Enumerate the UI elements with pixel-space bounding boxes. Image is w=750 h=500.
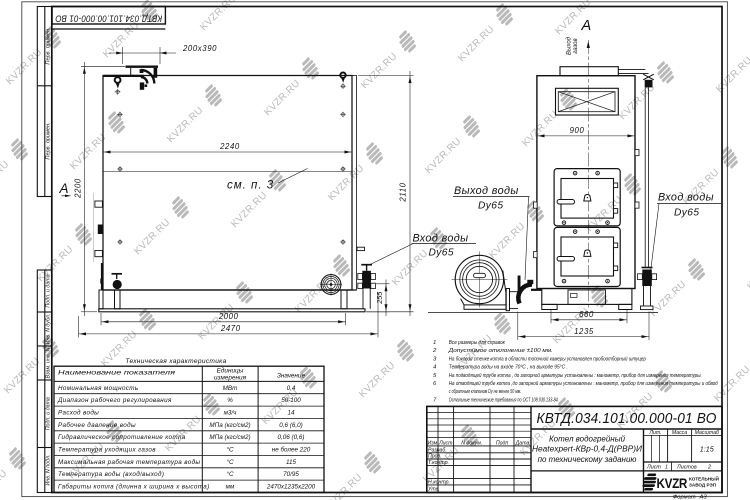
svg-text:КОТЕЛЬНЫЙ: КОТЕЛЬНЫЙ <box>689 475 719 482</box>
svg-text:2470: 2470 <box>220 324 241 333</box>
svg-text:см. п. 3: см. п. 3 <box>227 180 274 192</box>
svg-text:2240: 2240 <box>219 142 240 151</box>
svg-text:Все размеры для справок: Все размеры для справок <box>449 340 505 346</box>
svg-text:МВт: МВт <box>223 385 238 392</box>
svg-text:Лист: Лист <box>438 440 453 446</box>
svg-text:Пров.: Пров. <box>428 454 442 460</box>
svg-text:Выход воды: Выход воды <box>454 185 519 197</box>
svg-text:Номинальная мощность: Номинальная мощность <box>58 385 139 392</box>
svg-text:Остальные технические требован: Остальные технические требования по ОСТ … <box>449 397 559 403</box>
svg-text:ЗАВОД РЭП: ЗАВОД РЭП <box>689 483 716 488</box>
svg-text:Гидравлическое сопротивление к: Гидравлическое сопротивление котла <box>58 433 186 441</box>
svg-text:Температура воды (вход/выход): Температура воды (вход/выход) <box>58 470 164 478</box>
svg-text:Формат: Формат <box>673 495 696 500</box>
svg-text:КВТД.034.101.00.000-01 ВО: КВТД.034.101.00.000-01 ВО <box>537 410 717 427</box>
svg-text:Heatexpert-КВр-0,4-Д(РВР)И: Heatexpert-КВр-0,4-Д(РВР)И <box>532 445 642 454</box>
svg-text:Т.контр.: Т.контр. <box>428 460 449 466</box>
svg-text:Подп. и дата: Подп. и дата <box>45 274 51 307</box>
svg-text:1: 1 <box>433 340 436 346</box>
svg-text:KVZR: KVZR <box>657 476 688 491</box>
svg-text:А3: А3 <box>699 495 708 500</box>
svg-text:Наименование показателя: Наименование показателя <box>58 370 176 377</box>
svg-text:°С: °С <box>226 446 234 454</box>
svg-text:с обратным клапаном Dу не мен: с обратным клапаном Dу не менее 50 мм. <box>449 389 522 395</box>
svg-text:Перв. примен.: Перв. примен. <box>45 122 51 159</box>
svg-text:Утв.: Утв. <box>428 487 440 493</box>
svg-text:Рабочее давление воды: Рабочее давление воды <box>58 421 136 429</box>
svg-text:Dy65: Dy65 <box>478 201 503 212</box>
svg-text:2000: 2000 <box>218 312 239 321</box>
svg-text:Инв. N подл.: Инв. N подл. <box>45 455 51 486</box>
svg-text:2: 2 <box>432 348 437 354</box>
svg-text:50-100: 50-100 <box>281 397 301 404</box>
svg-text:Лит.: Лит. <box>648 430 661 436</box>
svg-text:A: A <box>59 181 69 196</box>
svg-text:измерения: измерения <box>214 375 247 382</box>
svg-text:900: 900 <box>570 126 585 135</box>
svg-text:Расход воды: Расход воды <box>58 409 99 417</box>
svg-text:м3/ч: м3/ч <box>224 410 238 417</box>
svg-text:70/95: 70/95 <box>283 471 299 478</box>
svg-text:МПа (кгс/см2): МПа (кгс/см2) <box>209 434 250 441</box>
svg-text:Взам. инв. N: Взам. инв. N <box>45 347 51 378</box>
svg-text:Диапазон рабочего регулировани: Диапазон рабочего регулирования <box>57 396 172 404</box>
svg-text:На боковой стенке котла в обла: На боковой стенке котла в области топочн… <box>449 355 647 362</box>
svg-text:Допустимое отклонение ±100 мм: Допустимое отклонение ±100 мм. <box>448 348 553 354</box>
svg-text:Вход воды: Вход воды <box>658 192 714 204</box>
svg-text:Техническая характеристика: Техническая характеристика <box>125 358 226 365</box>
svg-text:Dy65: Dy65 <box>674 208 699 219</box>
svg-text:5: 5 <box>433 373 437 379</box>
svg-text:0,06 (0,6): 0,06 (0,6) <box>278 434 305 441</box>
svg-text:мм: мм <box>226 484 235 491</box>
svg-text:Масштаб: Масштаб <box>695 430 720 436</box>
svg-text:Максимальная рабочая температу: Максимальная рабочая температура воды <box>58 458 200 466</box>
svg-text:КВТД.034.101.00.000-01 ВО: КВТД.034.101.00.000-01 ВО <box>55 13 162 23</box>
svg-text:Подп. и дата: Подп. и дата <box>45 397 51 430</box>
svg-text:1:15: 1:15 <box>700 445 715 454</box>
svg-text:Дата: Дата <box>515 440 530 446</box>
svg-text:МПа (кгс/см2): МПа (кгс/см2) <box>209 422 250 429</box>
svg-text:2: 2 <box>707 465 711 471</box>
svg-text:Лист: Лист <box>646 465 661 471</box>
svg-text:по техническому заданию: по техническому заданию <box>538 455 637 464</box>
svg-text:Габариты котла (длинна х ширин: Габариты котла (длинна х ширина х высота… <box>58 483 210 491</box>
svg-text:2470х1235х2200: 2470х1235х2200 <box>266 484 316 491</box>
svg-text:255: 255 <box>375 291 384 305</box>
svg-text:газов: газов <box>573 38 579 53</box>
svg-text:Котел водогрейный: Котел водогрейный <box>549 435 626 444</box>
svg-text:Листов: Листов <box>676 465 697 471</box>
svg-text:2110: 2110 <box>399 182 408 202</box>
svg-text:Температура воды на входе 70°: Температура воды на входе 70°С , на выхо… <box>449 365 568 371</box>
svg-text:Перв. примен.: Перв. примен. <box>45 27 51 64</box>
svg-text:A: A <box>581 18 592 34</box>
svg-text:Температура уходящих газов: Температура уходящих газов <box>58 446 156 454</box>
svg-text:Dy65: Dy65 <box>429 248 454 259</box>
svg-text:°С: °С <box>226 458 234 466</box>
svg-text:1235: 1235 <box>574 327 594 336</box>
svg-text:На отводящей трубе котла ,до з: На отводящей трубе котла ,до запорной ар… <box>449 380 719 387</box>
svg-text:3: 3 <box>433 356 437 362</box>
svg-text:0,4: 0,4 <box>287 385 296 392</box>
svg-text:14: 14 <box>287 410 295 417</box>
svg-text:не более 220: не более 220 <box>272 446 311 454</box>
svg-text:2200: 2200 <box>74 178 83 199</box>
svg-text:Вход воды: Вход воды <box>413 233 469 245</box>
svg-text:Значение: Значение <box>277 373 305 380</box>
svg-text:Единицы: Единицы <box>217 367 244 375</box>
svg-text:Подп: Подп <box>496 440 509 446</box>
svg-text:Выход: Выход <box>566 36 572 55</box>
svg-text:Н.контр.: Н.контр. <box>428 480 450 486</box>
svg-text:%: % <box>227 397 233 404</box>
svg-text:N докум.: N докум. <box>461 440 482 446</box>
svg-text:200х390: 200х390 <box>182 44 217 53</box>
svg-text:0,6 (6,0): 0,6 (6,0) <box>279 422 302 429</box>
svg-text:660: 660 <box>579 310 594 319</box>
svg-text:Масса: Масса <box>672 430 687 436</box>
svg-text:Изм: Изм <box>428 440 438 446</box>
svg-text:На подводящей трубе котла ,: На подводящей трубе котла , до запорной … <box>449 372 702 379</box>
svg-text:Разраб.: Разраб. <box>428 447 447 453</box>
svg-text:Инв. N дубл.: Инв. N дубл. <box>45 314 51 345</box>
svg-text:°С: °С <box>226 470 234 478</box>
svg-text:6: 6 <box>433 381 437 387</box>
svg-text:4: 4 <box>433 365 437 371</box>
svg-text:115: 115 <box>286 459 297 466</box>
svg-text:7: 7 <box>433 397 437 403</box>
svg-text:1: 1 <box>665 465 668 471</box>
